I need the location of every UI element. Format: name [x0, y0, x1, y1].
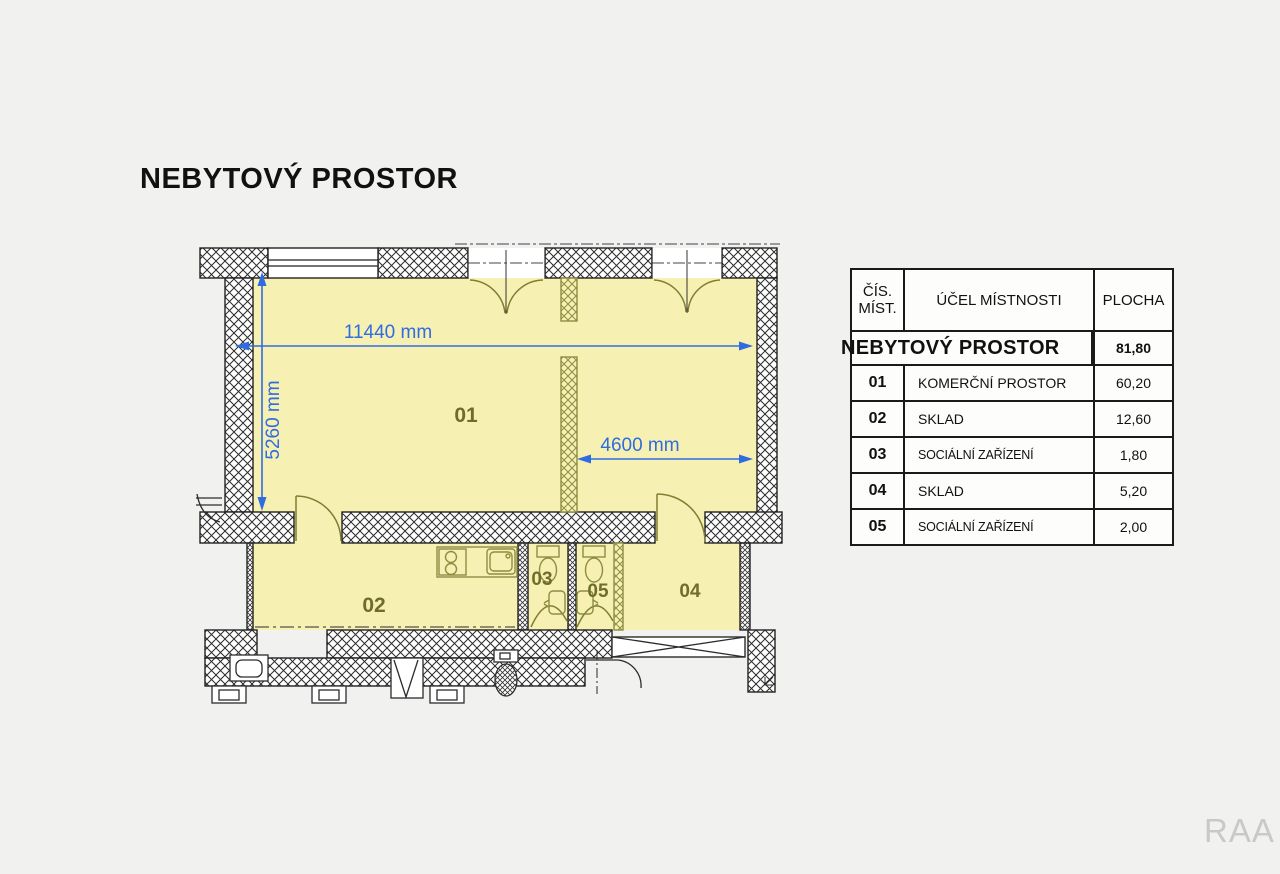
header-cis: ČÍS. [863, 283, 892, 300]
dimension-width-inner: 4600 mm [600, 435, 679, 456]
header-purpose: ÚČEL MÍSTNOSTI [905, 270, 1093, 330]
total-area: 81,80 [1093, 332, 1172, 364]
row-purpose: SOCIÁLNÍ ZAŘÍZENÍ [905, 438, 1093, 472]
row-purpose: SOCIÁLNÍ ZAŘÍZENÍ [905, 510, 1093, 544]
table-header-row: ČÍS. MÍST. ÚČEL MÍSTNOSTI PLOCHA [852, 270, 1172, 330]
row-area: 1,80 [1093, 438, 1172, 472]
watermark: RAA [1204, 812, 1275, 850]
row-number: 01 [852, 366, 905, 400]
room-label-01: 01 [454, 404, 478, 427]
row-purpose: SKLAD [905, 402, 1093, 436]
room-label-02: 02 [362, 594, 385, 617]
row-purpose: SKLAD [905, 474, 1093, 508]
header-room-number: ČÍS. MÍST. [852, 270, 905, 330]
room-label-03: 03 [531, 569, 552, 590]
total-label: NEBYTOVÝ PROSTOR [841, 337, 1060, 360]
table-row: 03 SOCIÁLNÍ ZAŘÍZENÍ 1,80 [852, 436, 1172, 472]
row-number: 02 [852, 402, 905, 436]
room-01-area [253, 278, 757, 512]
page-title: NEBYTOVÝ PROSTOR [140, 163, 458, 196]
row-number: 03 [852, 438, 905, 472]
row-purpose: KOMERČNÍ PROSTOR [905, 366, 1093, 400]
row-number: 05 [852, 510, 905, 544]
table-total-row: NEBYTOVÝ PROSTOR 81,80 [852, 330, 1172, 364]
row-area: 2,00 [1093, 510, 1172, 544]
row-area: 12,60 [1093, 402, 1172, 436]
table-row: 01 KOMERČNÍ PROSTOR 60,20 [852, 364, 1172, 400]
dimension-width-total: 11440 mm [344, 322, 432, 343]
screen: 01 02 03 05 04 11440 mm 5260 mm 4600 mm … [0, 0, 1280, 874]
room-label-05: 05 [587, 581, 609, 602]
row-area: 5,20 [1093, 474, 1172, 508]
table-row: 04 SKLAD 5,20 [852, 472, 1172, 508]
window [268, 248, 378, 278]
dimension-height-total: 5260 mm [263, 380, 284, 459]
row-area: 60,20 [1093, 366, 1172, 400]
header-area: PLOCHA [1093, 270, 1172, 330]
table-row: 02 SKLAD 12,60 [852, 400, 1172, 436]
header-mist: MÍST. [858, 300, 896, 317]
row-number: 04 [852, 474, 905, 508]
room-label-04: 04 [679, 581, 701, 602]
table-row: 05 SOCIÁLNÍ ZAŘÍZENÍ 2,00 [852, 508, 1172, 544]
room-legend-table: ČÍS. MÍST. ÚČEL MÍSTNOSTI PLOCHA NEBYTOV… [850, 268, 1174, 546]
